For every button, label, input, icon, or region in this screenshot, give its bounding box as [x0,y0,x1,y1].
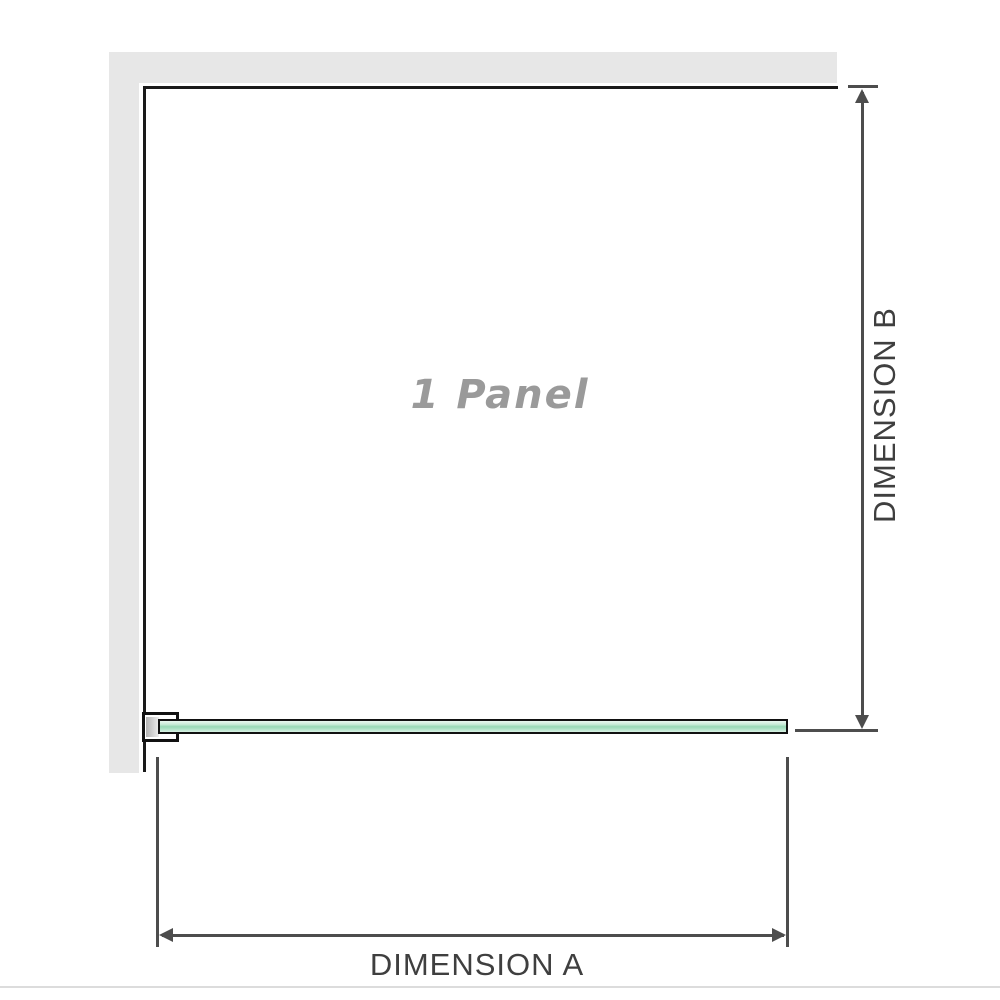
dimension-b-label: DIMENSION B [867,245,903,585]
dimension-b-bottom-tick [795,729,878,732]
page-divider-line [0,986,1000,988]
shower-panel-dimension-diagram: 1 Panel DIMENSION B DIMENSION A [0,0,1000,1000]
dimension-a-arrow-right-icon [772,928,786,942]
dimension-b-arrow-down-icon [855,715,869,729]
dimension-a-label: DIMENSION A [307,946,647,984]
dimension-b-top-tick [848,85,878,88]
dimension-b-arrow-up-icon [855,89,869,103]
glass-panel-bar [158,719,788,734]
dimension-a-arrow-left-icon [159,928,173,942]
wall-left-strip [109,52,139,773]
wall-top-strip [109,52,837,83]
frame-left-line [143,86,146,772]
dimension-b-line [861,92,864,722]
panel-count-label: 1 Panel [300,368,700,422]
frame-top-line [143,86,838,89]
dimension-a-right-extension-line [786,757,789,947]
dimension-a-line [162,934,784,937]
dimension-a-left-extension-line [156,757,159,947]
